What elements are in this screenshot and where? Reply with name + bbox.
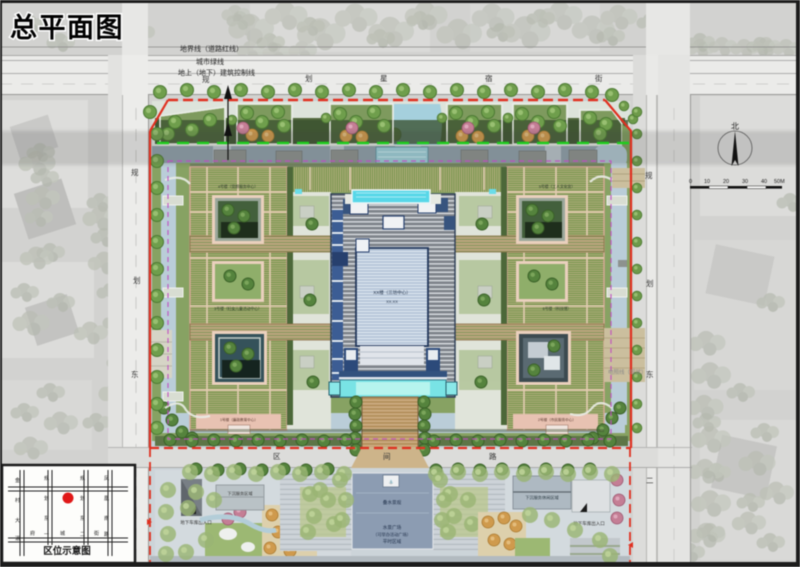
- svg-text:街: 街: [595, 73, 603, 83]
- svg-text:宿: 宿: [485, 73, 493, 83]
- svg-text:划: 划: [646, 278, 654, 288]
- svg-text:划: 划: [80, 495, 85, 502]
- svg-text:4号楼（党群服务中心）: 4号楼（党群服务中心）: [218, 184, 258, 189]
- svg-text:1号楼（廉政教育中心）: 1号楼（廉政教育中心）: [220, 417, 258, 422]
- svg-text:二: 二: [80, 532, 85, 538]
- svg-text:南: 南: [104, 515, 109, 522]
- svg-text:区位示意图: 区位示意图: [43, 545, 91, 557]
- svg-text:下沉服务区域: 下沉服务区域: [227, 490, 253, 497]
- svg-text:平时区域: 平时区域: [383, 538, 402, 545]
- svg-text:XX.XX: XX.XX: [386, 299, 398, 304]
- svg-text:水景广场: 水景广场: [383, 524, 402, 531]
- svg-text:路: 路: [104, 531, 109, 538]
- svg-text:街: 街: [94, 530, 99, 537]
- svg-text:二: 二: [646, 476, 654, 485]
- svg-text:地上（地下）建筑控制线: 地上（地下）建筑控制线: [178, 68, 255, 77]
- svg-text:⛲: ⛲: [389, 479, 394, 484]
- svg-text:20: 20: [723, 179, 729, 185]
- svg-text:总平面图: 总平面图: [10, 13, 124, 43]
- svg-text:6号楼（科技馆）: 6号楼（科技馆）: [543, 306, 572, 311]
- svg-text:（可举办活动广场）: （可举办活动广场）: [373, 531, 411, 538]
- svg-text:电照线（现状）: 电照线（现状）: [608, 368, 647, 376]
- svg-text:40: 40: [761, 179, 767, 185]
- svg-text:凤: 凤: [104, 476, 109, 482]
- svg-text:30: 30: [742, 179, 748, 185]
- svg-text:间: 间: [383, 452, 391, 461]
- svg-text:东: 东: [131, 369, 139, 379]
- svg-text:东: 东: [80, 515, 85, 522]
- svg-text:路: 路: [489, 451, 497, 461]
- svg-text:XX楼（三坊中心）: XX楼（三坊中心）: [373, 289, 411, 296]
- svg-text:10: 10: [704, 179, 710, 185]
- svg-text:规: 规: [645, 170, 653, 180]
- svg-text:3号楼（妇女儿童活动中心）: 3号楼（妇女儿童活动中心）: [214, 306, 262, 311]
- svg-text:城市绿线: 城市绿线: [196, 57, 224, 66]
- svg-text:划: 划: [133, 275, 141, 285]
- svg-text:北: 北: [731, 122, 739, 131]
- svg-text:划: 划: [44, 495, 49, 502]
- svg-text:5号楼（工人文化宫）: 5号楼（工人文化宫）: [539, 184, 575, 189]
- svg-text:下沉服务休闲区域: 下沉服务休闲区域: [525, 494, 559, 501]
- svg-text:2号楼（市民服务中心）: 2号楼（市民服务中心）: [538, 417, 576, 422]
- svg-text:金: 金: [15, 477, 20, 484]
- svg-text:村: 村: [15, 497, 20, 504]
- svg-text:规: 规: [80, 475, 85, 482]
- svg-text:叠水景观: 叠水景观: [383, 499, 402, 506]
- svg-text:东: 东: [646, 369, 654, 379]
- svg-text:东: 东: [44, 515, 49, 522]
- svg-text:一: 一: [44, 532, 49, 538]
- svg-text:规: 规: [131, 167, 139, 177]
- svg-text:规: 规: [202, 74, 210, 84]
- svg-text:大: 大: [15, 517, 20, 524]
- svg-text:规: 规: [44, 475, 49, 482]
- svg-text:道: 道: [15, 535, 20, 542]
- svg-text:0: 0: [689, 179, 692, 185]
- svg-text:城: 城: [60, 530, 65, 537]
- svg-text:划: 划: [305, 73, 313, 83]
- svg-text:府: 府: [30, 530, 35, 537]
- svg-text:星: 星: [380, 74, 388, 83]
- svg-text:50M: 50M: [774, 179, 785, 185]
- svg-text:地界线（道路红线）: 地界线（道路红线）: [180, 44, 243, 53]
- svg-text:凰: 凰: [104, 496, 109, 502]
- svg-text:区: 区: [273, 452, 281, 461]
